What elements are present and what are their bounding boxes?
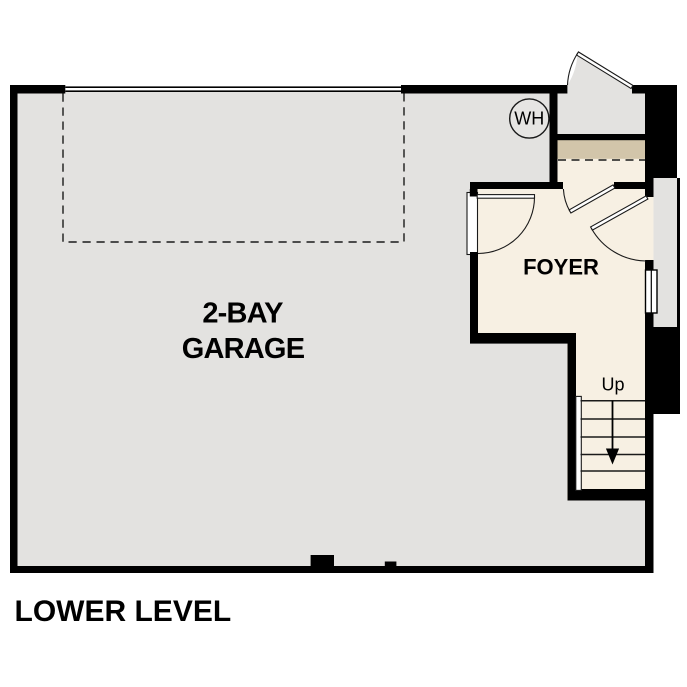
svg-text:Up: Up <box>601 375 624 395</box>
svg-text:WH: WH <box>514 109 544 129</box>
svg-text:LOWER LEVEL: LOWER LEVEL <box>15 595 232 628</box>
svg-text:FOYER: FOYER <box>523 254 599 279</box>
svg-text:2-BAY: 2-BAY <box>202 298 283 330</box>
svg-text:GARAGE: GARAGE <box>182 333 305 365</box>
